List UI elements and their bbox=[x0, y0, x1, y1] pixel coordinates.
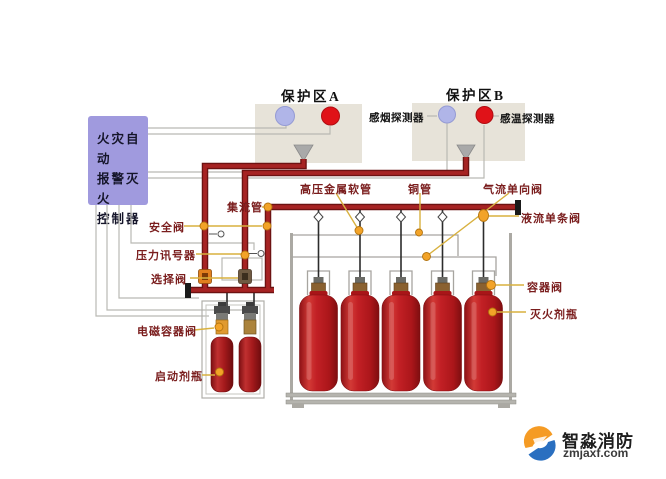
liquid-check-valve-label: 液流单条阀 bbox=[521, 210, 581, 226]
pressure-signal-label: 压力讯号器 bbox=[136, 247, 196, 263]
copper-pipe-label: 铜管 bbox=[408, 181, 432, 197]
zone-a-title: 保护区A bbox=[281, 85, 341, 105]
container-valve-label: 容器阀 bbox=[527, 279, 563, 295]
starter-bottle-label: 启动剂瓶 bbox=[155, 368, 203, 384]
solenoid-container-valve-label: 电磁容器阀 bbox=[137, 323, 197, 339]
agent-bottle-label: 灭火剂瓶 bbox=[530, 306, 578, 322]
labels-layer: 保护区A 保护区B 感烟探测器 感温探测器 高压金属软管 铜管 气流单向阀 集流… bbox=[0, 0, 666, 479]
high-pressure-hose-label: 高压金属软管 bbox=[300, 181, 372, 197]
zone-b-title: 保护区B bbox=[446, 84, 506, 104]
manifold-label: 集流管 bbox=[227, 199, 263, 215]
safety-valve-label: 安全阀 bbox=[149, 219, 185, 235]
brand-domain: zmjaxf.com bbox=[563, 446, 628, 460]
smoke-detector-label: 感烟探测器 bbox=[369, 110, 424, 125]
fire-suppression-system-diagram: 火灾自动 报警灭火 控制器 bbox=[0, 0, 666, 479]
gas-check-valve-label: 气流单向阀 bbox=[483, 181, 543, 197]
brand-footer: 智淼消防 zmjaxf.com bbox=[521, 425, 661, 469]
heat-detector-label: 感温探测器 bbox=[500, 111, 555, 126]
selector-valve-label: 选择阀 bbox=[151, 271, 187, 287]
